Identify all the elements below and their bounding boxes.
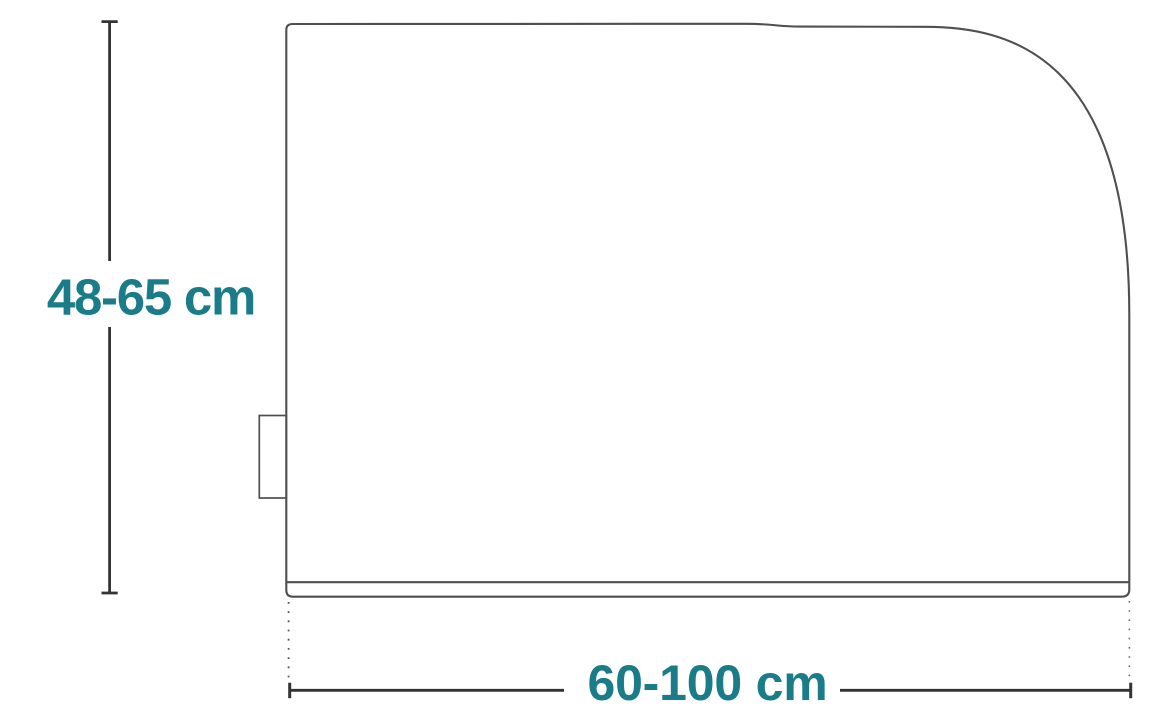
svg-text:60-100 cm: 60-100 cm [587, 655, 827, 711]
svg-text:48-65 cm: 48-65 cm [47, 269, 255, 326]
